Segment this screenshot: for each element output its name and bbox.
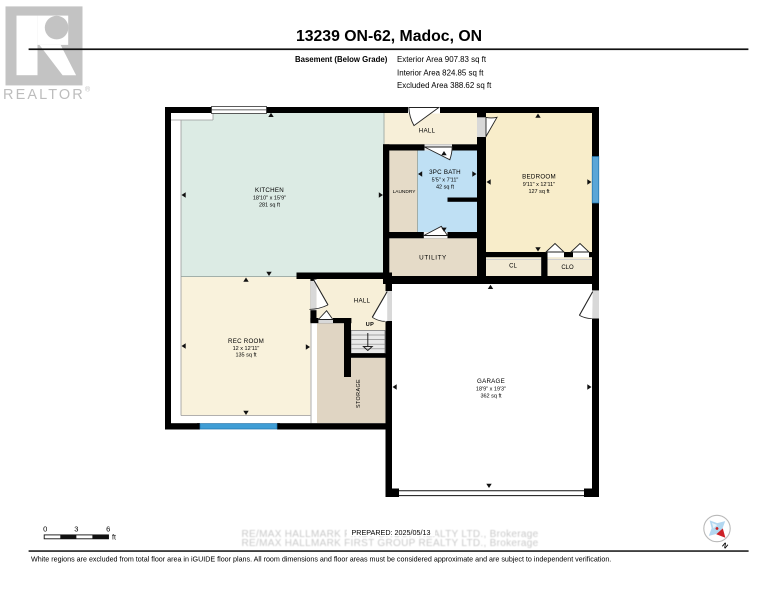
svg-text:REALTOR: REALTOR <box>3 87 85 103</box>
svg-text:5'5" x 7'11": 5'5" x 7'11" <box>432 178 459 184</box>
svg-text:BEDROOM: BEDROOM <box>522 174 556 181</box>
svg-text:®: ® <box>85 86 91 94</box>
svg-text:Excluded Area 388.62 sq ft: Excluded Area 388.62 sq ft <box>397 81 492 90</box>
svg-text:6: 6 <box>106 525 110 534</box>
svg-text:13239 ON-62, Madoc, ON: 13239 ON-62, Madoc, ON <box>296 28 482 45</box>
svg-text:STORAGE: STORAGE <box>356 379 362 408</box>
svg-text:CLO: CLO <box>561 265 574 271</box>
svg-text:N: N <box>720 542 728 551</box>
svg-text:REC ROOM: REC ROOM <box>228 338 264 345</box>
svg-text:18'10" x 15'9": 18'10" x 15'9" <box>253 196 286 202</box>
svg-text:0: 0 <box>43 525 47 534</box>
svg-text:281 sq ft: 281 sq ft <box>259 203 281 209</box>
svg-text:RE/MAX HALLMARK FIRST GROUP RE: RE/MAX HALLMARK FIRST GROUP REALTY LTD.,… <box>242 538 539 549</box>
svg-text:135 sq ft: 135 sq ft <box>235 353 257 359</box>
svg-text:PREPARED: 2025/05/13: PREPARED: 2025/05/13 <box>352 528 431 537</box>
svg-text:Exterior Area 907.83 sq ft: Exterior Area 907.83 sq ft <box>397 55 487 64</box>
svg-text:GARAGE: GARAGE <box>477 378 505 385</box>
svg-text:3: 3 <box>74 525 78 534</box>
svg-text:3PC BATH: 3PC BATH <box>429 169 461 176</box>
svg-text:127 sq ft: 127 sq ft <box>528 189 550 195</box>
svg-text:Interior Area 824.85 sq ft: Interior Area 824.85 sq ft <box>397 69 484 78</box>
svg-text:362 sq ft: 362 sq ft <box>480 394 502 400</box>
svg-text:HALL: HALL <box>419 128 436 135</box>
svg-text:9'11" x 12'11": 9'11" x 12'11" <box>523 182 555 188</box>
svg-text:Basement (Below Grade): Basement (Below Grade) <box>295 55 388 64</box>
svg-text:18'9" x 19'3": 18'9" x 19'3" <box>476 387 506 393</box>
svg-text:UP: UP <box>366 322 374 328</box>
svg-text:CL: CL <box>509 264 517 270</box>
svg-text:ft: ft <box>112 535 116 542</box>
svg-text:12 x 12'11": 12 x 12'11" <box>233 346 260 352</box>
svg-text:White regions are excluded fro: White regions are excluded from total fl… <box>31 556 611 564</box>
svg-text:HALL: HALL <box>354 298 371 305</box>
svg-text:KITCHEN: KITCHEN <box>255 187 284 194</box>
svg-text:LAUNDRY: LAUNDRY <box>393 189 417 195</box>
svg-text:42 sq ft: 42 sq ft <box>436 185 455 191</box>
svg-text:UTILITY: UTILITY <box>419 255 447 262</box>
